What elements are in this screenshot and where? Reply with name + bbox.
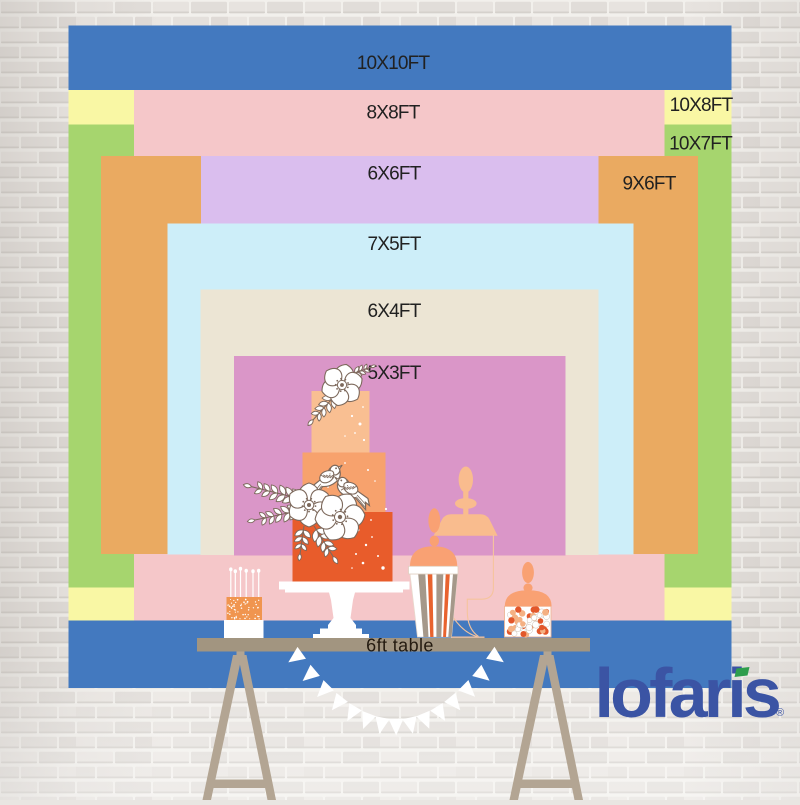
svg-text:lofaris: lofaris bbox=[595, 654, 780, 732]
svg-text:8X8FT: 8X8FT bbox=[366, 103, 420, 124]
svg-text:10X10FT: 10X10FT bbox=[357, 53, 431, 74]
svg-text:7X5FT: 7X5FT bbox=[367, 234, 421, 255]
svg-text:10X7FT: 10X7FT bbox=[669, 134, 733, 155]
svg-text:9X6FT: 9X6FT bbox=[622, 174, 676, 195]
svg-text:6X6FT: 6X6FT bbox=[367, 164, 421, 185]
svg-text:6ft table: 6ft table bbox=[366, 636, 434, 656]
svg-text:6X4FT: 6X4FT bbox=[367, 301, 421, 322]
svg-text:®: ® bbox=[776, 707, 784, 719]
svg-text:10X8FT: 10X8FT bbox=[670, 95, 734, 116]
